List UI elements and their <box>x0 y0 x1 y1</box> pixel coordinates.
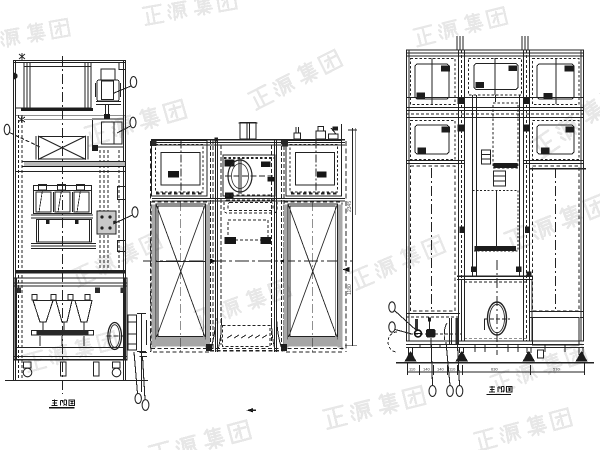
svg-text:140: 140 <box>437 367 444 372</box>
svg-text:630: 630 <box>491 367 498 372</box>
svg-text:510: 510 <box>553 367 560 372</box>
svg-text:140: 140 <box>423 367 430 372</box>
svg-text:1180: 1180 <box>347 284 353 295</box>
svg-text:110: 110 <box>449 367 456 372</box>
svg-text:110: 110 <box>409 367 416 372</box>
svg-text:2345: 2345 <box>347 201 353 212</box>
